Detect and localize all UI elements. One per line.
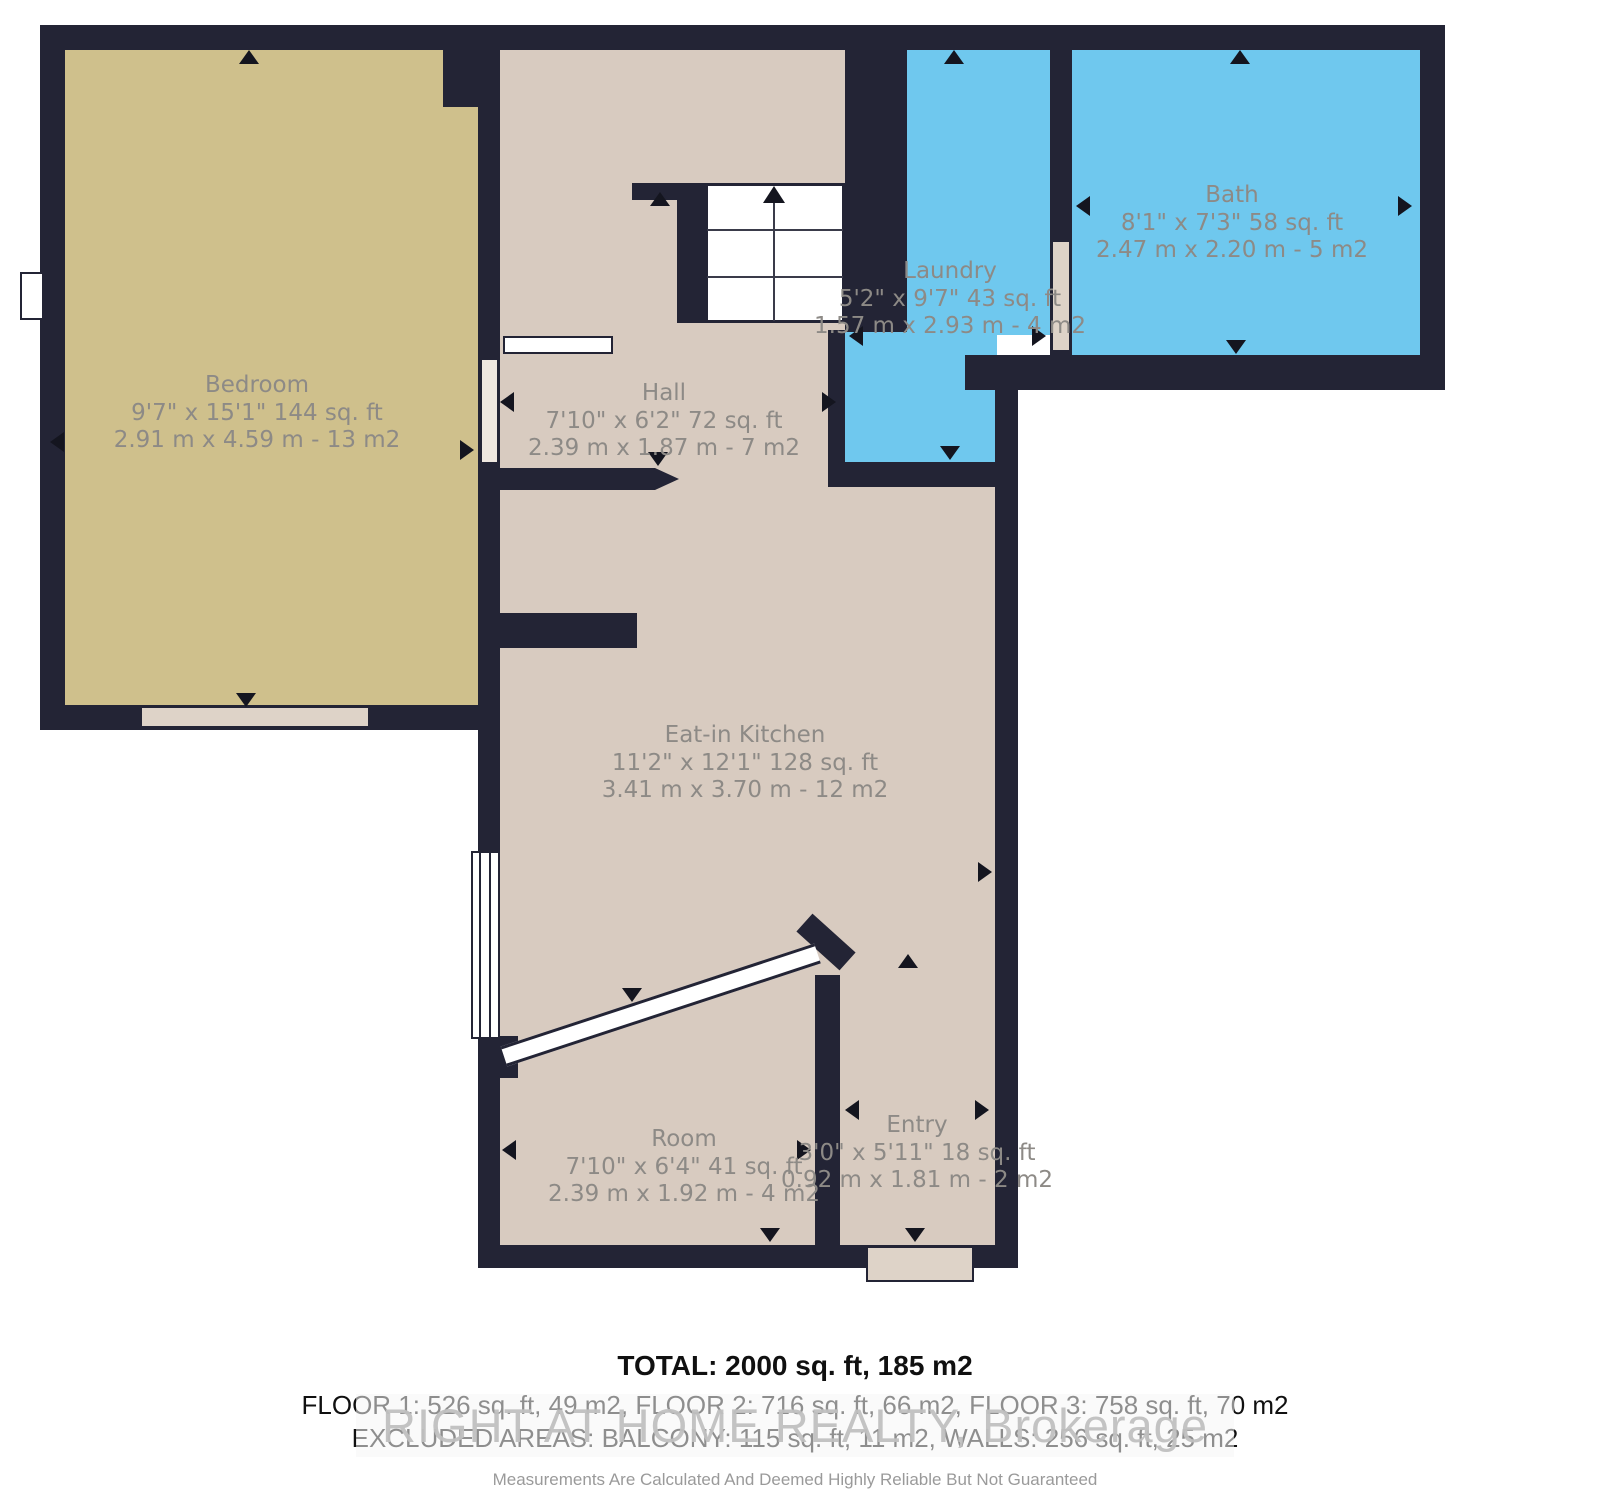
floorplan-canvas: Bedroom 9'7" x 15'1" 144 sq. ft 2.91 m x… [0,0,1600,1498]
room-name: Bath [1096,182,1368,210]
arrow-left-icon [50,432,64,452]
kitchen-window [471,851,500,1039]
arrow-left-icon [502,1140,516,1160]
arrow-down-icon [622,988,642,1002]
arrow-left-icon [1076,196,1090,216]
bath-label: Bath 8'1" x 7'3" 58 sq. ft 2.47 m x 2.20… [1096,182,1368,265]
wall-laundry-bottom [828,462,997,487]
stair-direction-arrow-icon [763,186,785,203]
hall-label: Hall 7'10" x 6'2" 72 sq. ft 2.39 m x 1.8… [528,380,800,463]
room-dims-metric: 3.41 m x 3.70 m - 12 m2 [602,777,889,805]
arrow-up-icon [650,192,670,206]
arrow-right-icon [978,862,992,882]
room-name: Hall [528,380,800,408]
kitchen-label: Eat-in Kitchen 11'2" x 12'1" 128 sq. ft … [602,722,889,805]
wall-stairs-left [677,200,705,323]
room-name: Room [548,1126,820,1154]
room-dims-imperial: 7'10" x 6'4" 41 sq. ft [548,1154,820,1182]
room-name: Bedroom [114,372,401,400]
kitchen-window-pane [479,853,481,1037]
wall-hall-partition [498,468,655,490]
bedroom-door-opening [480,358,499,464]
wall-kitchen-stub [498,613,637,648]
bedroom-label: Bedroom 9'7" x 15'1" 144 sq. ft 2.91 m x… [114,372,401,455]
stair-direction-line [773,203,775,321]
wall-bedroom-notch [443,25,480,107]
room-dims-metric: 2.47 m x 2.20 m - 5 m2 [1096,237,1368,265]
room-dims-imperial: 8'1" x 7'3" 58 sq. ft [1096,210,1368,238]
wall-top [40,25,1445,50]
wall-bedroom-left [40,25,65,730]
arrow-down-icon [940,446,960,460]
room-dims-imperial: 5'2" x 9'7" 43 sq. ft [814,286,1086,314]
wall-west-interior [478,25,500,1268]
bedroom-side-window [20,272,44,320]
room-dims-imperial: 7'10" x 6'2" 72 sq. ft [528,408,800,436]
arrow-right-icon [1398,196,1412,216]
room-dims-imperial: 3'0" x 5'11" 18 sq. ft [781,1140,1053,1168]
kitchen-window-pane [489,853,491,1037]
arrow-up-icon [1230,50,1250,64]
arrow-down-icon [1226,340,1246,354]
arrow-up-icon [239,50,259,64]
room-label: Room 7'10" x 6'4" 41 sq. ft 2.39 m x 1.9… [548,1126,820,1209]
understair-partition [503,336,613,354]
bedroom-window [140,706,370,728]
room-dims-metric: 2.91 m x 4.59 m - 13 m2 [114,427,401,455]
arrow-down-icon [905,1228,925,1242]
room-dims-imperial: 9'7" x 15'1" 144 sq. ft [114,400,401,428]
arrow-up-icon [898,954,918,968]
total-area-text: TOTAL: 2000 sq. ft, 185 m2 [617,1350,972,1382]
room-dims-metric: 1.57 m x 2.93 m - 4 m2 [814,313,1086,341]
arrow-right-icon [822,392,836,412]
entry-label: Entry 3'0" x 5'11" 18 sq. ft 0.92 m x 1.… [781,1112,1053,1195]
room-dims-metric: 0.92 m x 1.81 m - 2 m2 [781,1167,1053,1195]
arrow-down-icon [760,1228,780,1242]
room-dims-metric: 2.39 m x 1.92 m - 4 m2 [548,1181,820,1209]
wall-bath-bottom [965,355,1445,390]
room-name: Laundry [814,258,1086,286]
laundry-floor-lower [845,330,997,462]
wall-bath-right [1420,25,1445,390]
room-dims-metric: 2.39 m x 1.87 m - 7 m2 [528,435,800,463]
arrow-left-icon [500,392,514,412]
room-name: Entry [781,1112,1053,1140]
wall-hall-partition-point [655,468,679,490]
disclaimer-text: Measurements Are Calculated And Deemed H… [493,1470,1098,1490]
room-dims-imperial: 11'2" x 12'1" 128 sq. ft [602,750,889,778]
arrow-down-icon [236,693,256,707]
room-name: Eat-in Kitchen [602,722,889,750]
arrow-up-icon [944,50,964,64]
brokerage-watermark: RIGHT AT HOME REALTY, Brokerage [356,1394,1234,1457]
laundry-label: Laundry 5'2" x 9'7" 43 sq. ft 1.57 m x 2… [814,258,1086,341]
entry-door-opening [866,1246,974,1282]
stair-tread-line [707,229,843,231]
arrow-right-icon [460,440,474,460]
